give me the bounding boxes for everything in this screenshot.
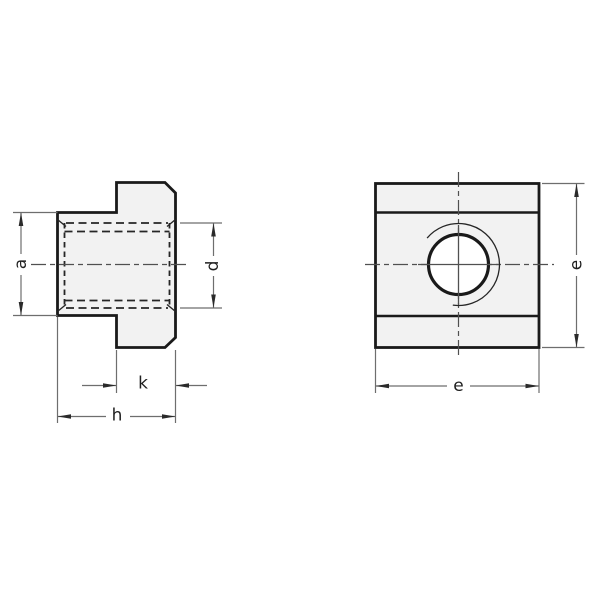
arrowhead-left xyxy=(176,383,190,388)
arrowhead-right xyxy=(162,414,176,419)
dimension-e-height: e xyxy=(542,184,587,348)
side-view xyxy=(31,183,188,348)
arrowhead-up xyxy=(19,213,24,227)
arrowhead-down xyxy=(211,295,216,309)
arrowhead-up xyxy=(211,223,216,237)
dimension-e-width-label: e xyxy=(453,376,463,396)
dimension-h-label: h xyxy=(112,406,123,426)
arrowhead-down xyxy=(19,302,24,316)
arrowhead-up xyxy=(574,184,579,198)
arrowhead-left xyxy=(58,414,72,419)
arrowhead-left xyxy=(376,384,390,389)
arrowhead-right xyxy=(103,383,117,388)
front-view xyxy=(365,172,554,359)
dimension-a-label: a xyxy=(11,259,31,269)
technical-drawing: a d k h e xyxy=(0,0,600,600)
arrowhead-down xyxy=(574,334,579,348)
arrowhead-right xyxy=(526,384,540,389)
dimension-d: d xyxy=(180,223,223,308)
dimension-e-width: e xyxy=(376,349,540,396)
dimension-e-height-label: e xyxy=(567,260,587,270)
dimension-d-label: d xyxy=(203,261,223,272)
dimension-k-label: k xyxy=(138,374,148,394)
dimension-k: k xyxy=(82,350,207,394)
